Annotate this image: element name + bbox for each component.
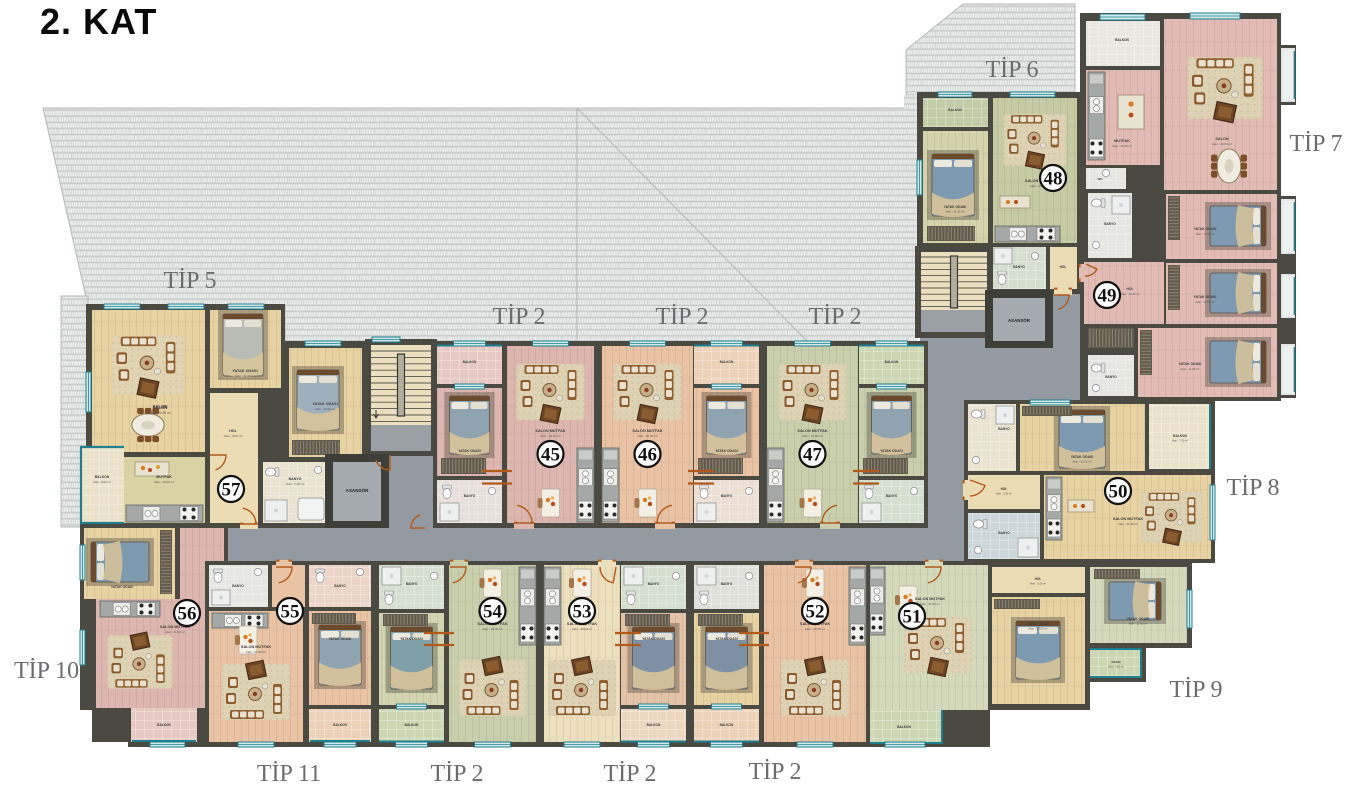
svg-text:TİP 2: TİP 2	[603, 761, 656, 787]
svg-text:SALON MUTFAK: SALON MUTFAK	[915, 597, 945, 601]
svg-text:MUTFAK: MUTFAK	[1114, 139, 1130, 143]
svg-text:YATAK ODASI: YATAK ODASI	[1127, 617, 1150, 621]
svg-text:BALKON: BALKON	[463, 360, 477, 364]
svg-text:SALON MUTFAK: SALON MUTFAK	[1113, 517, 1143, 521]
svg-text:TİP 2: TİP 2	[808, 304, 861, 330]
svg-text:BANYO: BANYO	[1013, 265, 1025, 269]
svg-text:2. KAT: 2. KAT	[40, 1, 157, 42]
svg-text:56: 56	[178, 604, 197, 625]
svg-text:SALON: SALON	[153, 405, 168, 410]
svg-text:Alan : 8.00 m²: Alan : 8.00 m²	[224, 434, 243, 438]
svg-text:SALON MUTFAK: SALON MUTFAK	[241, 645, 271, 649]
svg-text:BALKON: BALKON	[885, 360, 899, 364]
svg-text:BANYO: BANYO	[721, 582, 733, 586]
svg-text:YATAK ODASI: YATAK ODASI	[944, 205, 967, 209]
svg-text:45: 45	[541, 445, 560, 466]
svg-text:BALKON: BALKON	[95, 475, 110, 479]
svg-text:BANYO: BANYO	[232, 584, 244, 588]
svg-text:BALKON: BALKON	[405, 723, 419, 727]
svg-text:Alan : 20.00 m²: Alan : 20.00 m²	[805, 627, 825, 631]
svg-text:BALKON: BALKON	[948, 108, 962, 112]
svg-text:Alan : 7.50 m²: Alan : 7.50 m²	[1172, 439, 1188, 443]
svg-text:Alan : 13.00 m²: Alan : 13.00 m²	[1129, 622, 1148, 626]
svg-text:Alan : 12.00 m²: Alan : 12.00 m²	[1073, 460, 1092, 464]
svg-text:YATAK ODASI: YATAK ODASI	[715, 637, 738, 641]
svg-text:BALKON: BALKON	[157, 723, 171, 727]
svg-text:KILER: KILER	[1112, 660, 1122, 664]
svg-text:TİP 2: TİP 2	[748, 759, 801, 785]
svg-text:YATAK ODASI: YATAK ODASI	[232, 369, 257, 373]
svg-text:Alan : 20.50 m²: Alan : 20.50 m²	[149, 411, 171, 415]
svg-text:ASANSÖR: ASANSÖR	[1008, 318, 1031, 323]
svg-text:HOL: HOL	[1001, 487, 1008, 491]
svg-text:Alan : 11.00 m²: Alan : 11.00 m²	[946, 210, 965, 214]
svg-text:BANYO: BANYO	[464, 494, 476, 498]
svg-text:HOL: HOL	[1060, 265, 1067, 269]
svg-text:TİP 10: TİP 10	[14, 658, 79, 684]
svg-text:51: 51	[903, 607, 922, 628]
svg-text:YATAK ODASI: YATAK ODASI	[329, 637, 352, 641]
svg-text:BANYO: BANYO	[334, 584, 346, 588]
svg-text:TİP 2: TİP 2	[430, 761, 483, 787]
svg-text:WC: WC	[1098, 177, 1104, 181]
svg-text:TİP 7: TİP 7	[1289, 131, 1342, 157]
svg-text:YATAK ODASI: YATAK ODASI	[1071, 455, 1094, 459]
svg-text:53: 53	[573, 602, 592, 623]
svg-text:BALKON: BALKON	[647, 723, 661, 727]
svg-text:Alan : 21.00 m²: Alan : 21.00 m²	[246, 650, 266, 654]
svg-text:YATAK ODASI: YATAK ODASI	[880, 449, 903, 453]
svg-text:BANYO: BANYO	[1105, 375, 1117, 379]
svg-text:Alan : 3.00 m²: Alan : 3.00 m²	[996, 492, 1012, 496]
svg-text:55: 55	[281, 602, 300, 623]
svg-text:Alan : 21.00 m²: Alan : 21.00 m²	[920, 602, 940, 606]
svg-text:YATAK ODASI: YATAK ODASI	[642, 637, 665, 641]
svg-text:Alan : 20.00 m²: Alan : 20.00 m²	[802, 434, 822, 438]
svg-text:Alan : 12.50 m²: Alan : 12.50 m²	[1196, 232, 1215, 236]
svg-text:TİP 5: TİP 5	[163, 268, 216, 294]
svg-text:Alan : 8.00 m²: Alan : 8.00 m²	[93, 480, 110, 484]
svg-text:46: 46	[638, 445, 657, 466]
svg-text:TİP 2: TİP 2	[655, 304, 708, 330]
svg-text:HOL: HOL	[229, 429, 237, 433]
svg-text:YATAK ODASI: YATAK ODASI	[715, 449, 738, 453]
svg-text:TİP 6: TİP 6	[985, 57, 1038, 83]
svg-text:YATAK ODASI: YATAK ODASI	[1194, 227, 1217, 231]
svg-text:Alan : 3.00 m²: Alan : 3.00 m²	[1108, 666, 1124, 669]
svg-text:Alan : 11.00 m²: Alan : 11.00 m²	[235, 374, 255, 378]
svg-text:BALKON: BALKON	[1115, 38, 1129, 42]
svg-text:BALKON: BALKON	[333, 723, 347, 727]
svg-text:TİP 8: TİP 8	[1226, 475, 1279, 501]
svg-text:YATAK ODASI: YATAK ODASI	[458, 449, 481, 453]
svg-text:Alan : 12.00 m²: Alan : 12.00 m²	[1029, 627, 1048, 631]
svg-text:SALON: SALON	[1215, 137, 1229, 141]
svg-text:BANYO: BANYO	[1104, 222, 1116, 226]
svg-text:Alan : 12.00 m²: Alan : 12.00 m²	[1196, 300, 1215, 304]
svg-text:MUTFAK: MUTFAK	[156, 475, 172, 479]
svg-text:BANYO: BANYO	[721, 494, 733, 498]
svg-text:YATAK ODASI: YATAK ODASI	[312, 402, 337, 406]
svg-text:52: 52	[806, 602, 825, 623]
svg-text:Alan : 13.00 m²: Alan : 13.00 m²	[315, 407, 335, 411]
svg-text:BANYO: BANYO	[648, 582, 660, 586]
svg-text:Alan : 21.50 m²: Alan : 21.50 m²	[1118, 522, 1138, 526]
svg-text:Alan : 11.00 m²: Alan : 11.00 m²	[1181, 367, 1200, 371]
svg-text:YATAK ODASI: YATAK ODASI	[400, 637, 423, 641]
svg-text:50: 50	[1109, 482, 1128, 503]
svg-text:BALKON: BALKON	[1173, 434, 1187, 438]
svg-text:BANYO: BANYO	[406, 582, 418, 586]
svg-text:SALON MUTFAK: SALON MUTFAK	[535, 429, 565, 433]
svg-text:YATAK ODASI: YATAK ODASI	[1027, 622, 1050, 626]
svg-text:BANYO: BANYO	[886, 494, 898, 498]
svg-text:YATAK ODASI: YATAK ODASI	[111, 585, 134, 589]
svg-text:54: 54	[483, 602, 503, 623]
svg-text:Alan : 3.50 m²: Alan : 3.50 m²	[1030, 582, 1046, 586]
svg-text:BANYO: BANYO	[289, 477, 302, 481]
svg-text:Alan : 20.00 m²: Alan : 20.00 m²	[165, 630, 185, 634]
svg-text:Alan : 20.00 m²: Alan : 20.00 m²	[637, 434, 657, 438]
svg-text:Alan : 10.00 m²: Alan : 10.00 m²	[154, 480, 174, 484]
svg-text:TİP 11: TİP 11	[257, 761, 321, 787]
svg-text:TİP 2: TİP 2	[492, 304, 545, 330]
svg-text:HOL: HOL	[1126, 287, 1133, 291]
svg-text:Alan : 23.00 m²: Alan : 23.00 m²	[1212, 142, 1232, 146]
svg-text:Alan : 20.00 m²: Alan : 20.00 m²	[572, 627, 592, 631]
svg-text:ASANSÖR: ASANSÖR	[346, 487, 370, 493]
svg-text:48: 48	[1044, 169, 1063, 190]
svg-text:Alan : 12.00 m²: Alan : 12.00 m²	[1121, 292, 1140, 296]
svg-text:YATAK ODASI: YATAK ODASI	[1179, 362, 1202, 366]
svg-text:49: 49	[1098, 286, 1117, 307]
svg-text:Alan : 20.00 m²: Alan : 20.00 m²	[540, 434, 560, 438]
svg-text:TİP 9: TİP 9	[1169, 677, 1222, 703]
svg-text:BALKON: BALKON	[897, 725, 911, 729]
svg-text:47: 47	[803, 445, 823, 466]
svg-text:BANYO: BANYO	[998, 427, 1010, 431]
svg-text:SALON MUTFAK: SALON MUTFAK	[797, 429, 827, 433]
svg-text:SALON MUTFAK: SALON MUTFAK	[632, 429, 662, 433]
svg-text:57: 57	[222, 480, 242, 501]
svg-text:Alan : 11.00 m²: Alan : 11.00 m²	[1112, 144, 1132, 148]
svg-text:BALKON: BALKON	[720, 723, 734, 727]
svg-text:Alan : 7.00 m²: Alan : 7.00 m²	[286, 482, 305, 486]
svg-text:BALKON: BALKON	[720, 360, 734, 364]
svg-text:BANYO: BANYO	[998, 531, 1010, 535]
svg-text:HOL: HOL	[1035, 577, 1042, 581]
svg-text:Alan : 20.00 m²: Alan : 20.00 m²	[482, 627, 502, 631]
svg-text:YATAK ODASI: YATAK ODASI	[1194, 295, 1217, 299]
